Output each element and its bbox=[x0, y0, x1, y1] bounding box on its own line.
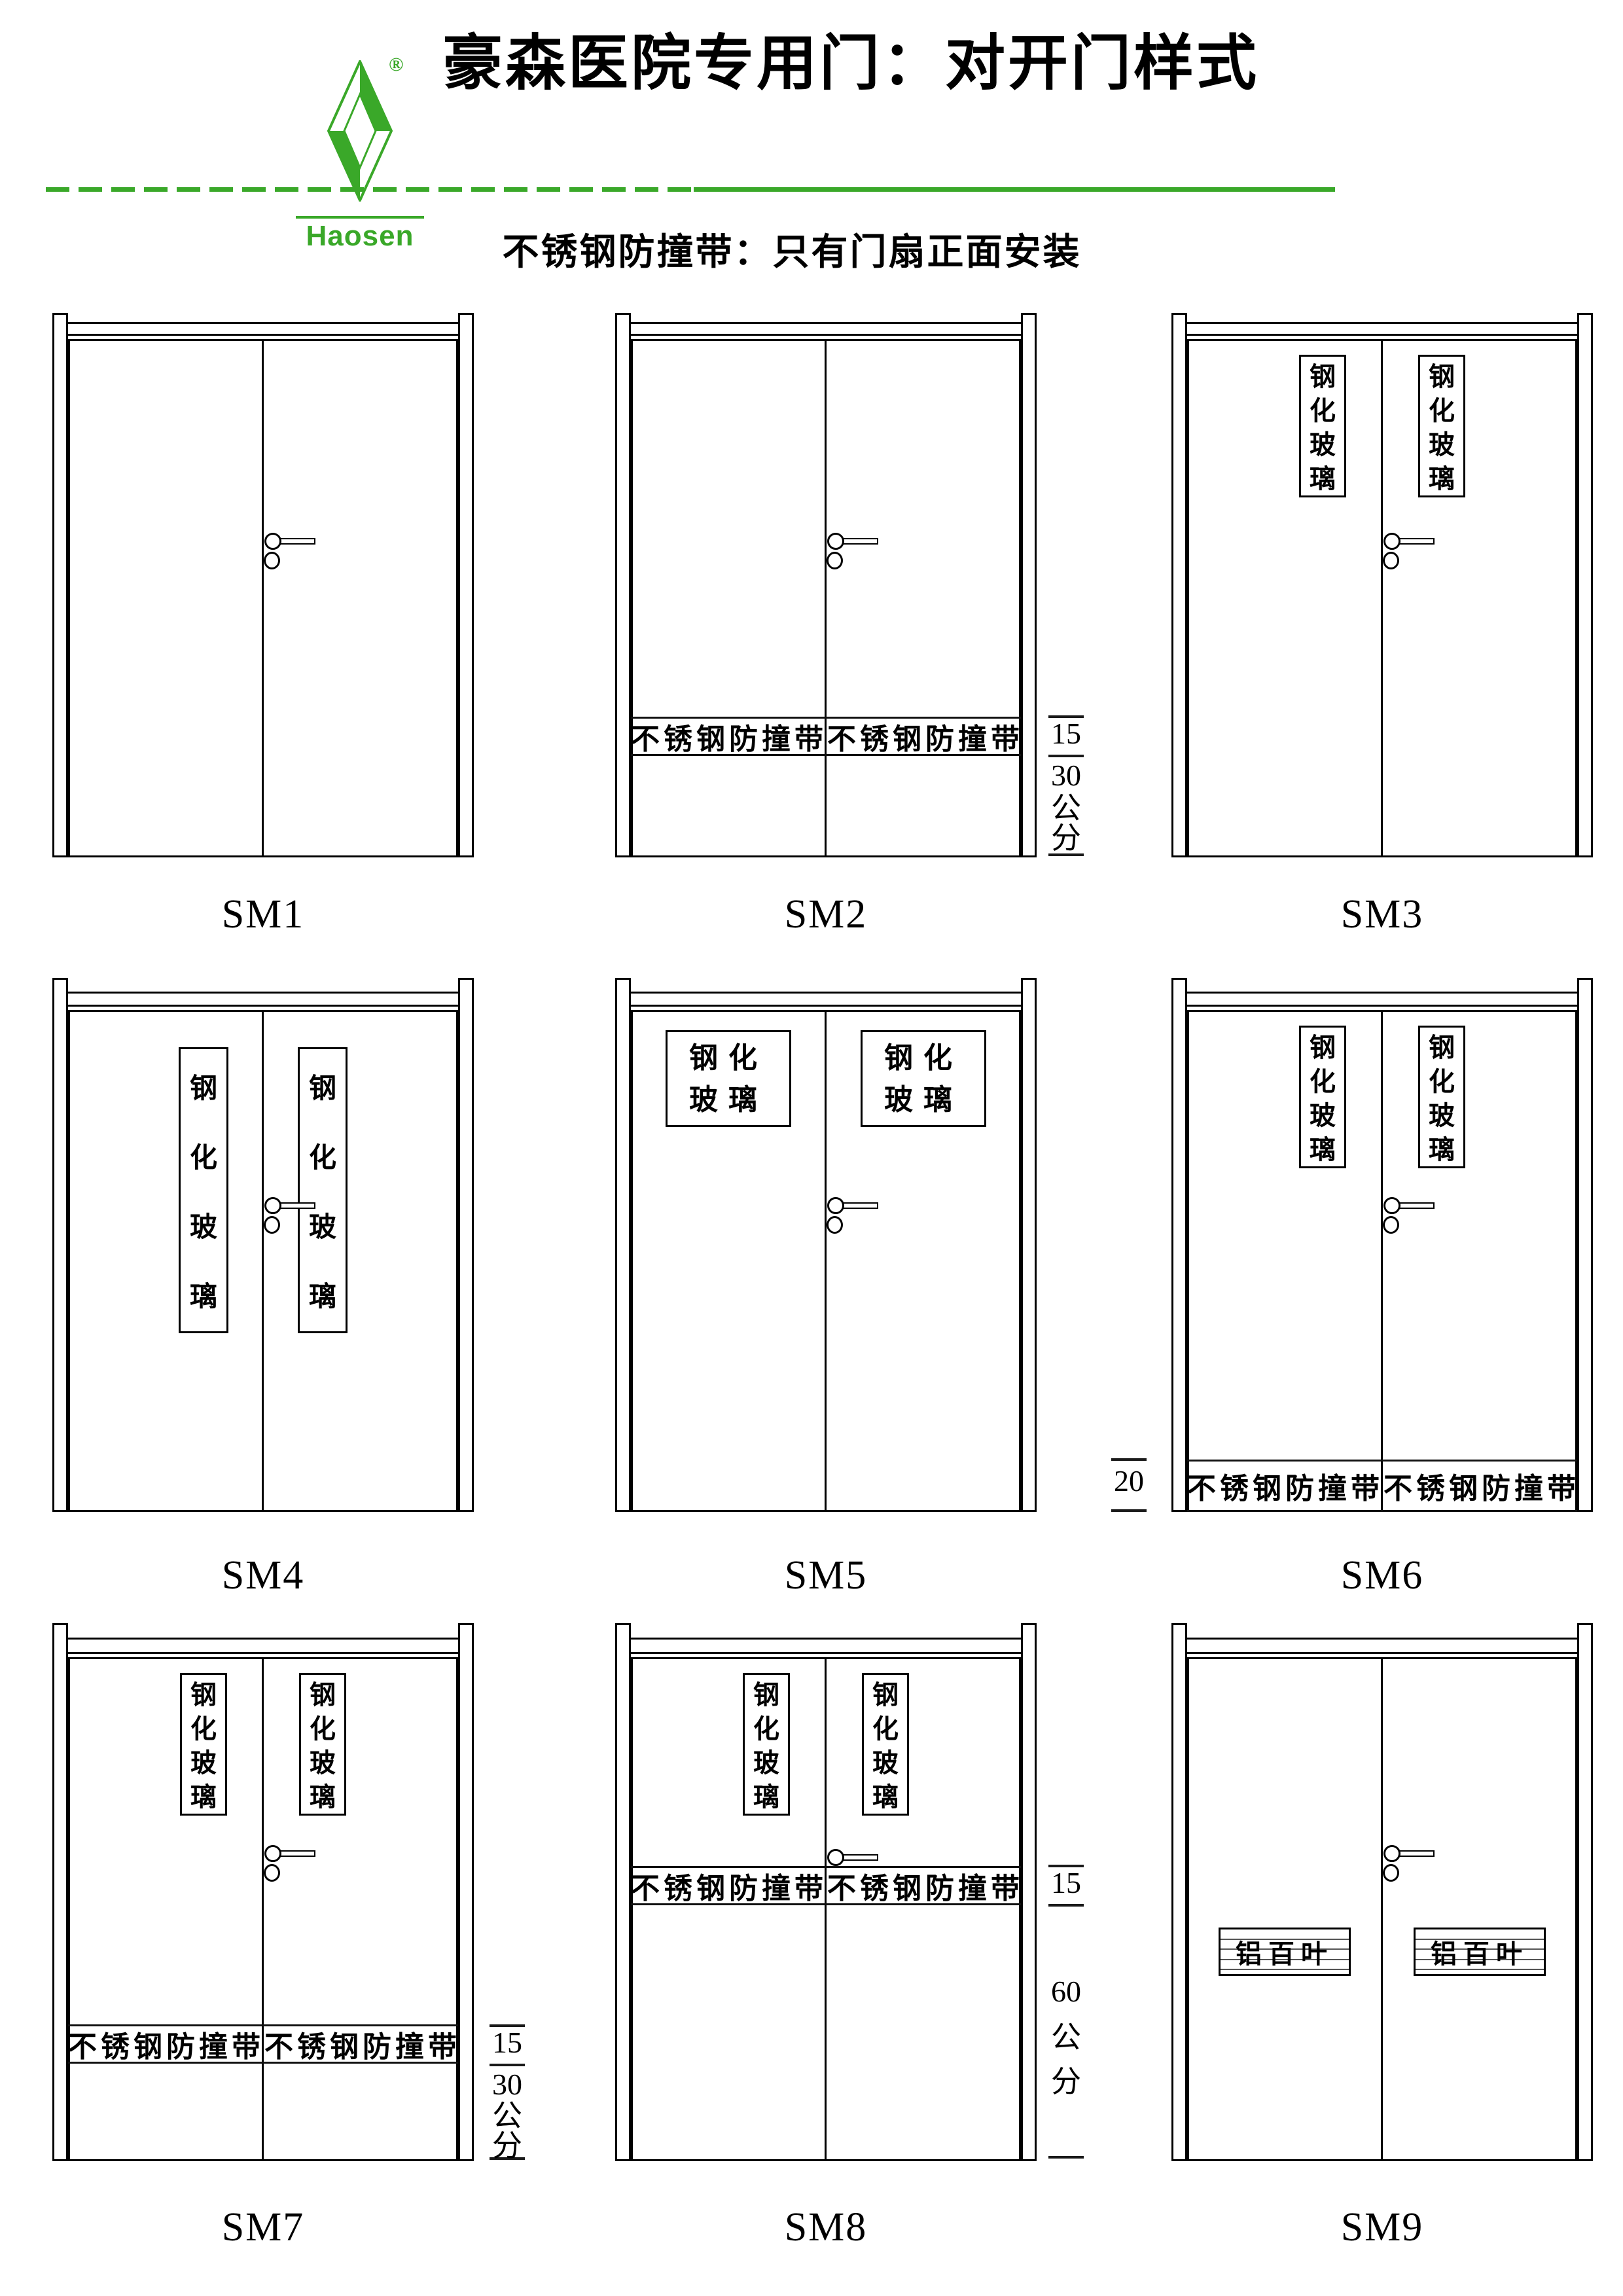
door-center-divider-sm9 bbox=[1381, 1657, 1383, 2161]
door-handle-icon-sm2 bbox=[827, 533, 844, 550]
aluminum-louver-sm9-right: 铝百叶 bbox=[1414, 1928, 1546, 1976]
door-handle-icon-sm9 bbox=[1383, 1845, 1400, 1862]
door-handle-icon-sm4 bbox=[264, 1197, 281, 1214]
dimension-value-sm2-0: 15 bbox=[1048, 719, 1084, 749]
dimension-value-sm8-1: 60 bbox=[1048, 1977, 1084, 2007]
door-lintel-sm6 bbox=[1183, 992, 1581, 1007]
door-center-divider-sm4 bbox=[262, 1010, 264, 1512]
door-post-right-sm4 bbox=[458, 978, 474, 1512]
door-post-left-sm8 bbox=[615, 1623, 631, 2161]
door-keyhole-icon-sm6 bbox=[1383, 1216, 1399, 1234]
door-post-right-sm7 bbox=[458, 1623, 474, 2161]
anti-collision-strip-sm2: 不锈钢防撞带不锈钢防撞带 bbox=[631, 717, 1021, 756]
door-center-divider-sm3 bbox=[1381, 339, 1383, 857]
door-lintel-sm1 bbox=[64, 322, 462, 336]
door-handle-lever-sm8 bbox=[842, 1854, 878, 1861]
door-lintel-sm2 bbox=[627, 322, 1025, 336]
door-label-sm7: SM7 bbox=[52, 2204, 474, 2251]
door-center-divider-sm8 bbox=[825, 1657, 827, 2161]
tempered-glass-panel-sm8-right: 钢化玻璃 bbox=[862, 1673, 909, 1816]
door-center-divider-sm5 bbox=[825, 1010, 827, 1512]
door-handle-icon-sm6 bbox=[1383, 1197, 1400, 1214]
door-handle-lever-sm3 bbox=[1398, 538, 1435, 545]
door-post-left-sm9 bbox=[1171, 1623, 1187, 2161]
tempered-glass-panel-sm4-left: 钢化玻璃 bbox=[179, 1047, 228, 1333]
door-post-right-sm5 bbox=[1021, 978, 1037, 1512]
dimension-tick-sm6-1 bbox=[1111, 1509, 1147, 1512]
door-lintel-sm8 bbox=[627, 1638, 1025, 1654]
tempered-glass-panel-sm6-left: 钢化玻璃 bbox=[1299, 1026, 1346, 1168]
door-post-right-sm2 bbox=[1021, 313, 1037, 857]
door-lintel-sm7 bbox=[64, 1638, 462, 1654]
green-divider-solid bbox=[694, 187, 1335, 192]
anti-collision-strip-text: 不锈钢防撞带 bbox=[631, 719, 827, 754]
door-handle-lever-sm9 bbox=[1398, 1850, 1435, 1857]
door-post-left-sm1 bbox=[52, 313, 68, 857]
tempered-glass-panel-sm7-right: 钢化玻璃 bbox=[299, 1673, 346, 1816]
dimension-value-sm2-1: 30 bbox=[1048, 761, 1084, 791]
door-handle-icon-sm5 bbox=[827, 1197, 844, 1214]
door-label-sm4: SM4 bbox=[52, 1552, 474, 1599]
door-keyhole-icon-sm1 bbox=[264, 552, 280, 569]
door-lintel-sm3 bbox=[1183, 322, 1581, 336]
dimension-tick-sm8-1 bbox=[1048, 1904, 1084, 1907]
door-handle-lever-sm4 bbox=[279, 1202, 315, 1209]
door-post-right-sm6 bbox=[1577, 978, 1593, 1512]
dimension-value-sm6-0: 20 bbox=[1111, 1466, 1147, 1496]
door-post-right-sm3 bbox=[1577, 313, 1593, 857]
anti-collision-strip-text: 不锈钢防撞带 bbox=[631, 1868, 827, 1903]
dimension-value-sm7-0: 15 bbox=[490, 2028, 525, 2058]
document-page: ® Haosen 豪森医院专用门：对开门样式 不锈钢防撞带：只有门扇正面安装 S… bbox=[0, 0, 1623, 2296]
door-keyhole-icon-sm4 bbox=[264, 1216, 280, 1234]
door-post-left-sm6 bbox=[1171, 978, 1187, 1512]
door-lintel-sm5 bbox=[627, 992, 1025, 1007]
dimension-value-sm2-2: 公 bbox=[1048, 793, 1084, 823]
anti-collision-strip-text: 不锈钢防撞带 bbox=[1187, 1462, 1383, 1510]
door-post-right-sm9 bbox=[1577, 1623, 1593, 2161]
page-title: 豪森医院专用门：对开门样式 bbox=[366, 14, 1335, 101]
dimension-tick-sm7-1 bbox=[490, 2064, 525, 2066]
door-post-left-sm3 bbox=[1171, 313, 1187, 857]
tempered-glass-panel-sm5-left: 钢化玻璃 bbox=[666, 1030, 791, 1127]
dimension-value-sm7-2: 公 bbox=[490, 2101, 525, 2131]
door-label-sm1: SM1 bbox=[52, 891, 474, 938]
door-handle-icon-sm7 bbox=[264, 1845, 281, 1862]
green-divider-dashed bbox=[46, 187, 694, 192]
door-label-sm8: SM8 bbox=[615, 2204, 1037, 2251]
anti-collision-strip-text: 不锈钢防撞带 bbox=[827, 719, 1024, 754]
door-center-divider-sm2 bbox=[825, 339, 827, 857]
door-keyhole-icon-sm3 bbox=[1383, 552, 1399, 569]
louver-text: 铝百叶 bbox=[1416, 1929, 1544, 1974]
dimension-value-sm8-3: 分 bbox=[1048, 2067, 1084, 2097]
tempered-glass-panel-sm8-left: 钢化玻璃 bbox=[743, 1673, 790, 1816]
door-center-divider-sm7 bbox=[262, 1657, 264, 2161]
door-label-sm6: SM6 bbox=[1171, 1552, 1593, 1599]
tempered-glass-panel-sm7-left: 钢化玻璃 bbox=[180, 1673, 227, 1816]
door-keyhole-icon-sm5 bbox=[827, 1216, 843, 1234]
door-handle-icon-sm1 bbox=[264, 533, 281, 550]
dimension-value-sm7-1: 30 bbox=[490, 2070, 525, 2100]
dimension-value-sm2-3: 分 bbox=[1048, 823, 1084, 853]
dimension-tick-sm8-2 bbox=[1048, 2156, 1084, 2159]
anti-collision-strip-sm7: 不锈钢防撞带不锈钢防撞带 bbox=[68, 2024, 458, 2064]
louver-text: 铝百叶 bbox=[1221, 1929, 1349, 1974]
page-subtitle: 不锈钢防撞带：只有门扇正面安装 bbox=[419, 223, 1165, 276]
tempered-glass-panel-sm4-right: 钢化玻璃 bbox=[298, 1047, 348, 1333]
door-post-right-sm1 bbox=[458, 313, 474, 857]
door-keyhole-icon-sm7 bbox=[264, 1864, 280, 1882]
door-post-left-sm5 bbox=[615, 978, 631, 1512]
dimension-tick-sm2-1 bbox=[1048, 755, 1084, 757]
door-label-sm2: SM2 bbox=[615, 891, 1037, 938]
door-post-left-sm2 bbox=[615, 313, 631, 857]
door-center-divider-sm6 bbox=[1381, 1010, 1383, 1512]
door-keyhole-icon-sm9 bbox=[1383, 1864, 1399, 1882]
door-post-left-sm7 bbox=[52, 1623, 68, 2161]
anti-collision-strip-text: 不锈钢防撞带 bbox=[68, 2026, 264, 2062]
dimension-value-sm7-3: 分 bbox=[490, 2131, 525, 2161]
tempered-glass-panel-sm3-left: 钢化玻璃 bbox=[1299, 355, 1346, 497]
door-handle-icon-sm8 bbox=[827, 1849, 844, 1866]
door-label-sm9: SM9 bbox=[1171, 2204, 1593, 2251]
door-label-sm3: SM3 bbox=[1171, 891, 1593, 938]
tempered-glass-panel-sm5-right: 钢化玻璃 bbox=[861, 1030, 986, 1127]
aluminum-louver-sm9-left: 铝百叶 bbox=[1219, 1928, 1351, 1976]
anti-collision-strip-text: 不锈钢防撞带 bbox=[1383, 1462, 1580, 1510]
door-handle-lever-sm6 bbox=[1398, 1202, 1435, 1209]
door-post-left-sm4 bbox=[52, 978, 68, 1512]
dimension-value-sm8-2: 公 bbox=[1048, 2022, 1084, 2053]
dimension-value-sm8-0: 15 bbox=[1048, 1868, 1084, 1898]
door-label-sm5: SM5 bbox=[615, 1552, 1037, 1599]
door-lintel-sm4 bbox=[64, 992, 462, 1007]
dimension-tick-sm6-0 bbox=[1111, 1458, 1147, 1461]
door-handle-lever-sm2 bbox=[842, 538, 878, 545]
door-lintel-sm9 bbox=[1183, 1638, 1581, 1654]
brand-name: Haosen bbox=[281, 220, 438, 253]
anti-collision-strip-text: 不锈钢防撞带 bbox=[827, 1868, 1024, 1903]
anti-collision-strip-sm8: 不锈钢防撞带不锈钢防撞带 bbox=[631, 1866, 1021, 1905]
tempered-glass-panel-sm6-right: 钢化玻璃 bbox=[1418, 1026, 1465, 1168]
door-handle-lever-sm1 bbox=[279, 538, 315, 545]
anti-collision-strip-text: 不锈钢防撞带 bbox=[264, 2026, 461, 2062]
anti-collision-strip-sm6: 不锈钢防撞带不锈钢防撞带 bbox=[1187, 1460, 1577, 1512]
logo-underline bbox=[296, 216, 424, 219]
door-center-divider-sm1 bbox=[262, 339, 264, 857]
door-keyhole-icon-sm2 bbox=[827, 552, 843, 569]
door-handle-lever-sm5 bbox=[842, 1202, 878, 1209]
tempered-glass-panel-sm3-right: 钢化玻璃 bbox=[1418, 355, 1465, 497]
door-handle-icon-sm3 bbox=[1383, 533, 1400, 550]
door-handle-lever-sm7 bbox=[279, 1850, 315, 1857]
